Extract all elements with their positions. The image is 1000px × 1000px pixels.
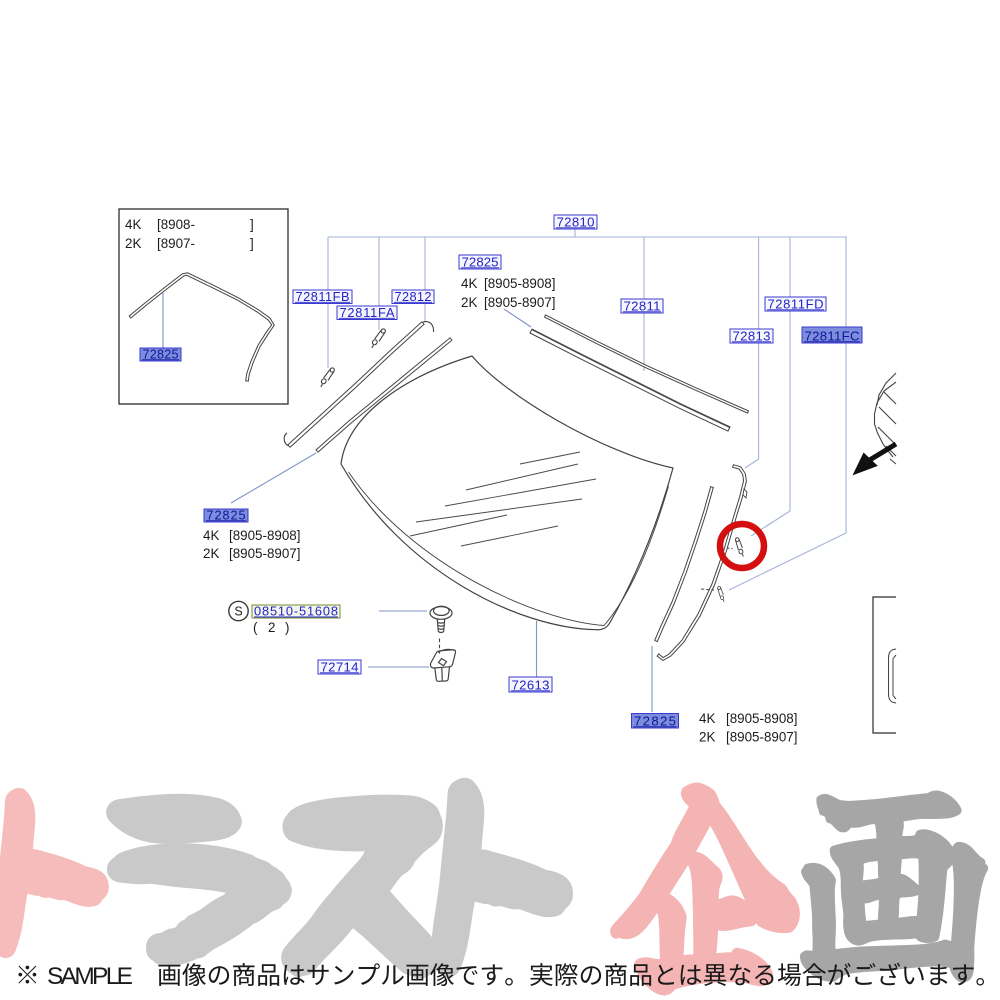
svg-text:4K: 4K bbox=[699, 711, 715, 726]
svg-text:72613: 72613 bbox=[512, 678, 550, 693]
svg-text:): ) bbox=[285, 620, 289, 635]
svg-text:2K: 2K bbox=[125, 236, 141, 251]
svg-text:72811: 72811 bbox=[624, 299, 661, 314]
svg-text:72825: 72825 bbox=[634, 714, 676, 729]
svg-text:[8905-8908]: [8905-8908] bbox=[229, 528, 300, 543]
svg-text:72813: 72813 bbox=[733, 329, 771, 344]
svg-text:[8905-8907]: [8905-8907] bbox=[726, 730, 797, 745]
svg-text:4K: 4K bbox=[461, 276, 477, 291]
svg-text:2K: 2K bbox=[461, 295, 477, 310]
svg-text:72811FC: 72811FC bbox=[805, 329, 860, 344]
svg-text:4K: 4K bbox=[125, 217, 141, 232]
svg-text:72810: 72810 bbox=[557, 215, 595, 230]
svg-text:72825: 72825 bbox=[462, 255, 499, 270]
svg-text:72811FA: 72811FA bbox=[340, 305, 395, 320]
svg-text:[8905-8907]: [8905-8907] bbox=[229, 546, 300, 561]
svg-text:72812: 72812 bbox=[395, 289, 432, 304]
svg-text:2K: 2K bbox=[699, 730, 715, 745]
svg-text:[8908-: [8908- bbox=[157, 217, 195, 232]
svg-text:[8905-8907]: [8905-8907] bbox=[484, 295, 555, 310]
svg-text:72811FD: 72811FD bbox=[768, 297, 824, 312]
svg-text:[8905-8908]: [8905-8908] bbox=[484, 276, 555, 291]
svg-text:SAMPLE: SAMPLE bbox=[47, 963, 133, 990]
svg-text:4K: 4K bbox=[203, 528, 219, 543]
svg-text:2: 2 bbox=[268, 620, 275, 635]
svg-text:08510-51608: 08510-51608 bbox=[254, 604, 338, 619]
svg-text:S: S bbox=[234, 605, 242, 619]
svg-text:(: ( bbox=[253, 620, 258, 635]
svg-text:]: ] bbox=[250, 217, 254, 232]
svg-text:2K: 2K bbox=[203, 546, 219, 561]
svg-text:]: ] bbox=[250, 236, 254, 251]
svg-text:72811FB: 72811FB bbox=[296, 289, 350, 304]
svg-text:72714: 72714 bbox=[321, 660, 359, 675]
svg-text:[8907-: [8907- bbox=[157, 236, 195, 251]
svg-text:[8905-8908]: [8905-8908] bbox=[726, 711, 797, 726]
